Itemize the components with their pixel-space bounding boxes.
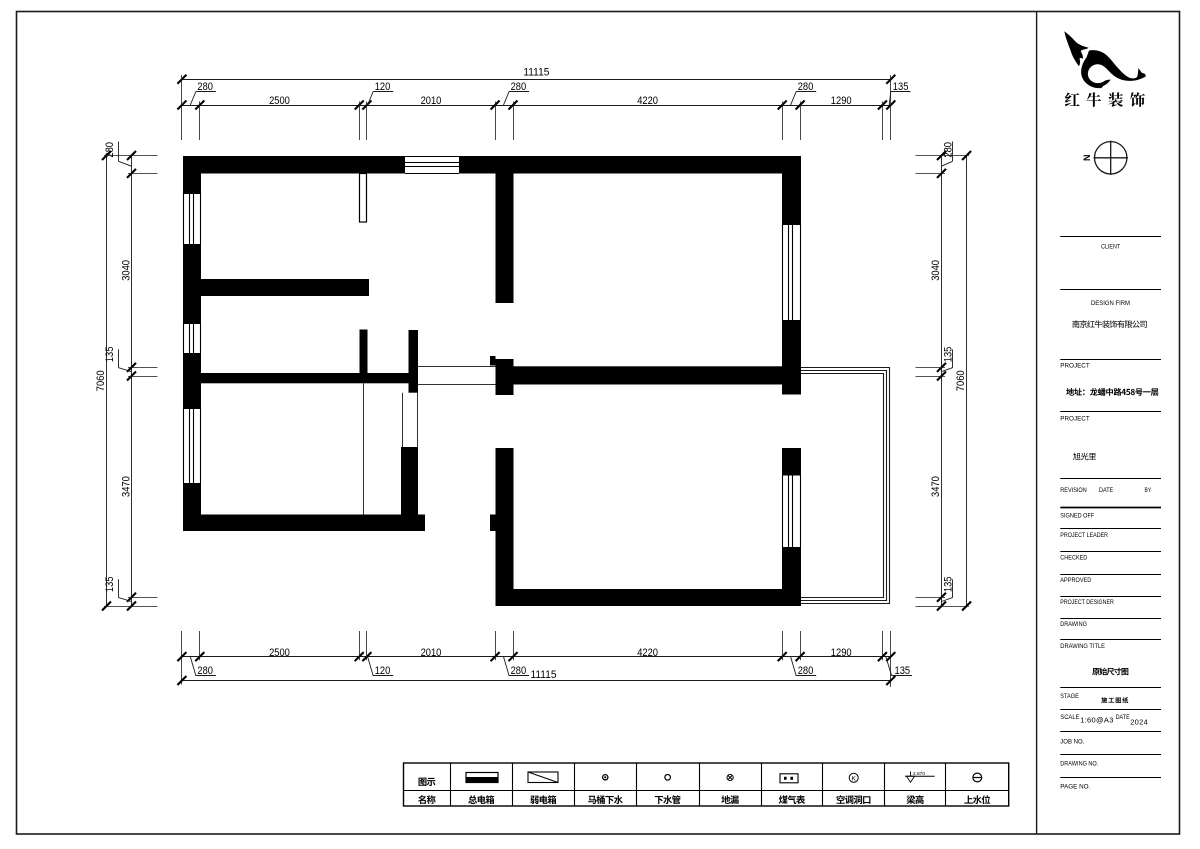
svg-text:BY: BY [1145,487,1152,494]
svg-text:280: 280 [511,81,527,93]
svg-text:7060: 7060 [95,370,107,391]
svg-text:2010: 2010 [421,95,442,107]
svg-text:SCALE: SCALE [1060,714,1079,721]
svg-text:1:60@A3: 1:60@A3 [1080,716,1113,725]
svg-text:135: 135 [104,347,116,363]
svg-text:DATE: DATE [1116,714,1130,721]
svg-text:STAGE: STAGE [1060,693,1079,700]
svg-text:2500: 2500 [269,647,290,659]
svg-text:4220: 4220 [637,647,658,659]
svg-text:N: N [1082,155,1092,162]
svg-text:2.870: 2.870 [913,771,925,777]
svg-text:PROJECT: PROJECT [1060,415,1089,422]
svg-text:2010: 2010 [421,647,442,659]
svg-text:JOB NO.: JOB NO. [1060,739,1084,746]
svg-text:135: 135 [893,81,909,93]
svg-text:135: 135 [104,577,116,593]
svg-text:PROJECT: PROJECT [1060,362,1089,369]
svg-text:3470: 3470 [930,476,942,497]
svg-text:CLIENT: CLIENT [1101,244,1120,251]
svg-text:K: K [852,775,857,782]
svg-text:PROJECT DESIGNER: PROJECT DESIGNER [1060,599,1114,606]
svg-text:280: 280 [197,665,213,677]
svg-text:135: 135 [895,665,911,677]
svg-text:11115: 11115 [523,67,549,79]
svg-text:280: 280 [798,81,814,93]
svg-text:1290: 1290 [831,647,852,659]
svg-text:DRAWING: DRAWING [1060,621,1087,628]
svg-text:APPROVED: APPROVED [1060,577,1091,584]
svg-text:11115: 11115 [531,669,557,681]
svg-text:3040: 3040 [930,260,942,281]
svg-text:DATE: DATE [1099,487,1113,494]
svg-text:280: 280 [197,81,213,93]
svg-text:280: 280 [943,142,955,158]
svg-text:PROJECT LEADER: PROJECT LEADER [1060,532,1108,539]
svg-text:3470: 3470 [121,476,133,497]
svg-text:SIGNED OFF: SIGNED OFF [1060,512,1094,519]
svg-text:280: 280 [798,665,814,677]
svg-text:PAGE NO.: PAGE NO. [1060,783,1090,790]
svg-text:2500: 2500 [269,95,290,107]
svg-text:280: 280 [104,142,116,158]
svg-text:120: 120 [375,81,391,93]
svg-text:135: 135 [943,347,955,363]
svg-text:7060: 7060 [955,370,967,391]
svg-text:2024: 2024 [1130,717,1148,726]
svg-text:1290: 1290 [831,95,852,107]
svg-text:280: 280 [511,665,527,677]
svg-text:4220: 4220 [637,95,658,107]
svg-text:3040: 3040 [121,260,133,281]
svg-text:DRAWING TITLE: DRAWING TITLE [1060,643,1105,650]
svg-text:CHECKED: CHECKED [1060,555,1087,562]
svg-text:135: 135 [943,577,955,593]
svg-text:REVISION: REVISION [1060,487,1087,494]
svg-text:DRAWING NO.: DRAWING NO. [1060,760,1098,767]
svg-text:120: 120 [375,665,391,677]
svg-text:DESIGN FIRM: DESIGN FIRM [1091,300,1130,307]
